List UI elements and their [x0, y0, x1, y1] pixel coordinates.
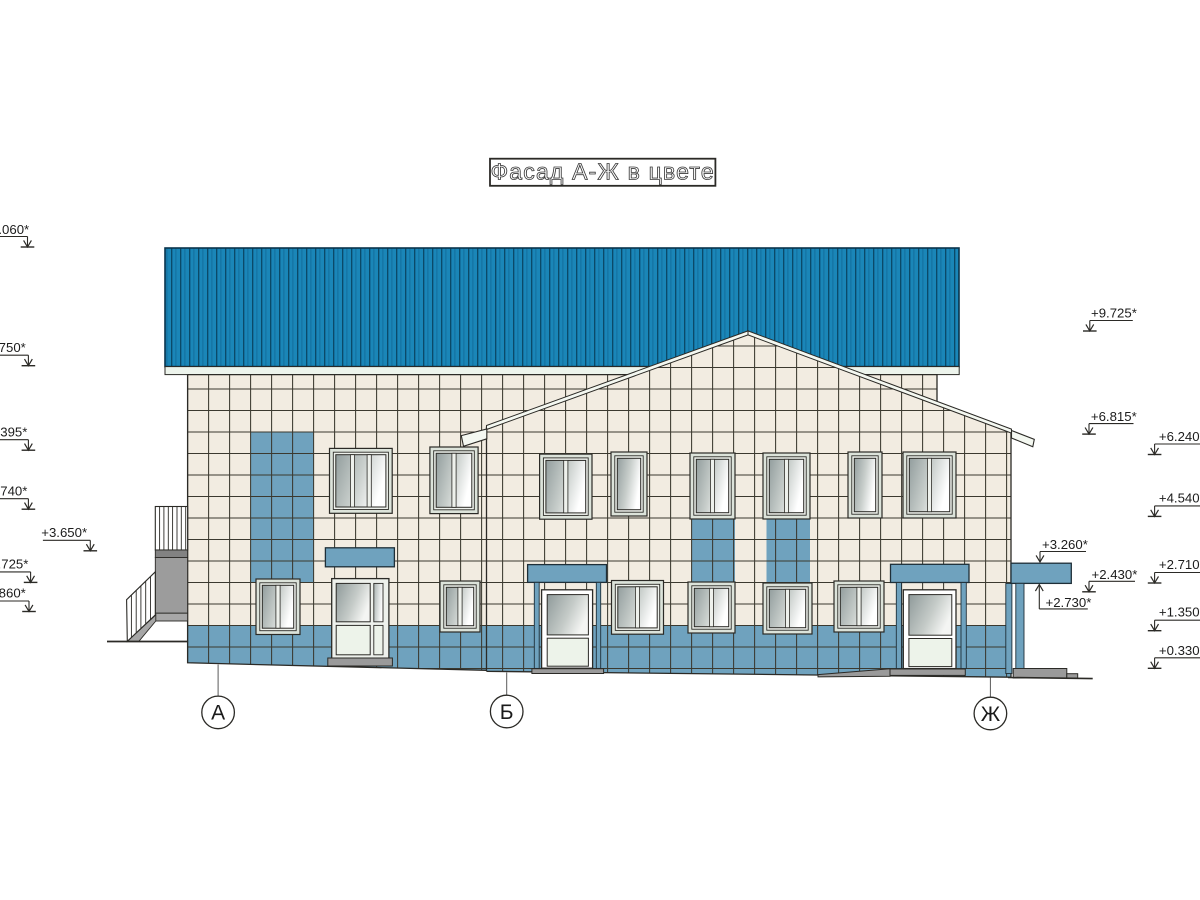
svg-text:+3.260*: +3.260*	[1042, 537, 1088, 552]
svg-text:+3.650*: +3.650*	[41, 525, 87, 540]
svg-text:+2.710*: +2.710*	[1159, 557, 1200, 572]
svg-text:.860*: .860*	[0, 586, 26, 601]
svg-text:.750*: .750*	[0, 340, 26, 355]
svg-text:.725*: .725*	[0, 557, 28, 572]
svg-text:А: А	[211, 702, 225, 725]
svg-text:+6.240*: +6.240*	[1159, 429, 1200, 444]
svg-text:+2.730*: +2.730*	[1046, 595, 1092, 610]
svg-text:+0.330*: +0.330*	[1159, 643, 1200, 658]
svg-text:+4.540*: +4.540*	[1159, 490, 1200, 505]
svg-text:Б: Б	[500, 701, 514, 724]
svg-text:+2.430*: +2.430*	[1092, 567, 1138, 582]
svg-text:Фасад А-Ж в цвете: Фасад А-Ж в цвете	[491, 159, 715, 185]
svg-text:+1.350*: +1.350*	[1159, 605, 1200, 620]
svg-text:.740*: .740*	[0, 484, 27, 499]
svg-text:.060*: .060*	[0, 222, 29, 237]
svg-text:.395*: .395*	[0, 425, 27, 440]
svg-text:+6.815*: +6.815*	[1091, 409, 1137, 424]
svg-text:+9.725*: +9.725*	[1091, 306, 1137, 321]
svg-text:Ж: Ж	[981, 703, 1001, 726]
